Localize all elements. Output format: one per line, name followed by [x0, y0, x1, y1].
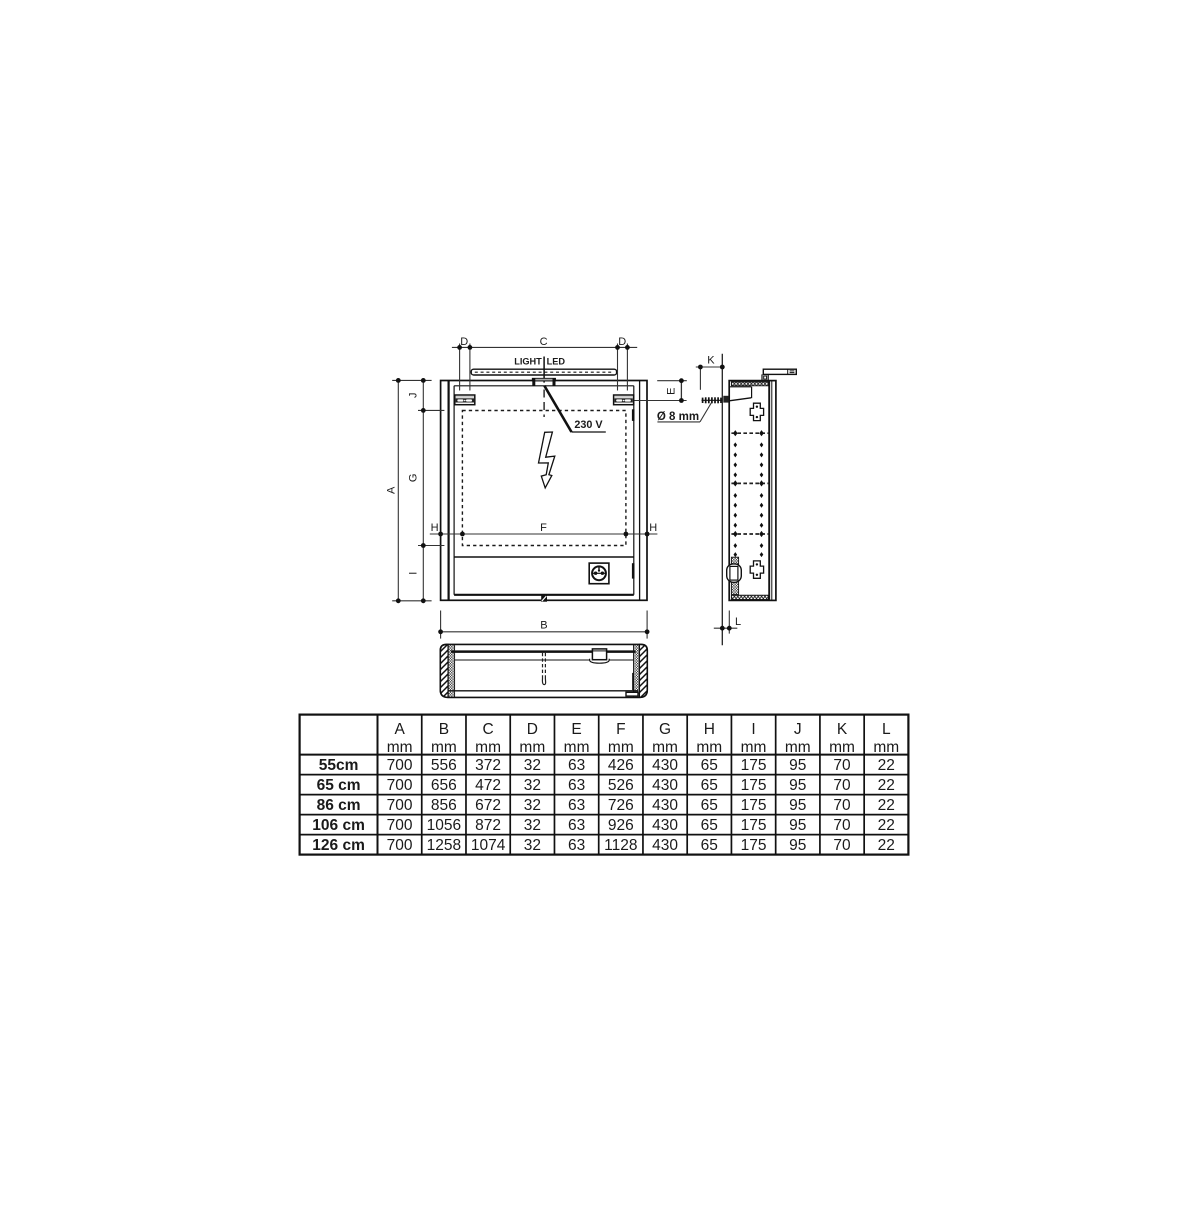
svg-text:E: E — [666, 388, 678, 395]
svg-text:mm: mm — [475, 739, 501, 756]
svg-text:H: H — [431, 522, 439, 534]
svg-text:B: B — [540, 620, 547, 632]
svg-text:B: B — [439, 721, 449, 738]
svg-text:mm: mm — [564, 739, 590, 756]
svg-text:63: 63 — [568, 837, 585, 854]
svg-text:LIGHT: LIGHT — [514, 357, 542, 367]
svg-text:32: 32 — [524, 817, 541, 834]
svg-text:95: 95 — [789, 837, 806, 854]
svg-text:70: 70 — [833, 777, 851, 794]
svg-text:H: H — [704, 721, 715, 738]
svg-text:22: 22 — [878, 777, 895, 794]
svg-text:K: K — [707, 355, 715, 367]
svg-text:672: 672 — [475, 797, 501, 814]
svg-text:65: 65 — [701, 817, 718, 834]
svg-text:700: 700 — [387, 757, 413, 774]
svg-text:700: 700 — [387, 817, 413, 834]
svg-text:22: 22 — [878, 837, 895, 854]
svg-text:J: J — [408, 392, 420, 398]
svg-text:mm: mm — [608, 739, 634, 756]
svg-text:106 cm: 106 cm — [312, 817, 365, 834]
svg-text:65: 65 — [701, 757, 718, 774]
svg-text:86 cm: 86 cm — [317, 797, 361, 814]
svg-text:65: 65 — [701, 797, 718, 814]
svg-text:1056: 1056 — [427, 817, 461, 834]
svg-text:63: 63 — [568, 777, 585, 794]
svg-text:55cm: 55cm — [319, 757, 359, 774]
svg-text:526: 526 — [608, 777, 634, 794]
svg-text:726: 726 — [608, 797, 634, 814]
svg-text:372: 372 — [475, 757, 501, 774]
svg-text:175: 175 — [741, 757, 767, 774]
svg-text:95: 95 — [789, 777, 806, 794]
svg-text:430: 430 — [652, 797, 678, 814]
svg-text:C: C — [482, 721, 493, 738]
svg-text:I: I — [408, 572, 420, 575]
svg-text:mm: mm — [519, 739, 545, 756]
svg-text:430: 430 — [652, 777, 678, 794]
svg-text:426: 426 — [608, 757, 634, 774]
svg-text:32: 32 — [524, 797, 541, 814]
svg-text:95: 95 — [789, 757, 806, 774]
svg-text:95: 95 — [789, 817, 806, 834]
svg-text:1128: 1128 — [604, 837, 637, 854]
svg-text:A: A — [385, 486, 397, 494]
svg-text:E: E — [571, 721, 581, 738]
svg-text:I: I — [751, 721, 755, 738]
svg-text:L: L — [882, 721, 891, 738]
svg-text:472: 472 — [475, 777, 501, 794]
svg-text:mm: mm — [696, 739, 722, 756]
svg-text:70: 70 — [833, 797, 851, 814]
svg-text:K: K — [837, 721, 848, 738]
svg-text:mm: mm — [741, 739, 767, 756]
svg-text:175: 175 — [741, 777, 767, 794]
svg-text:656: 656 — [431, 777, 457, 794]
svg-text:C: C — [540, 336, 548, 348]
svg-text:D: D — [618, 336, 626, 348]
svg-text:63: 63 — [568, 817, 585, 834]
svg-text:G: G — [408, 474, 420, 483]
svg-text:175: 175 — [741, 837, 767, 854]
svg-text:63: 63 — [568, 797, 585, 814]
svg-text:70: 70 — [833, 757, 851, 774]
svg-text:65: 65 — [701, 777, 718, 794]
svg-text:63: 63 — [568, 757, 585, 774]
svg-text:700: 700 — [387, 797, 413, 814]
svg-text:126 cm: 126 cm — [312, 837, 365, 854]
svg-text:95: 95 — [789, 797, 806, 814]
svg-text:F: F — [616, 721, 625, 738]
svg-text:700: 700 — [387, 777, 413, 794]
svg-text:mm: mm — [431, 739, 457, 756]
svg-text:A: A — [394, 721, 405, 738]
svg-text:F: F — [540, 522, 547, 534]
svg-text:G: G — [659, 721, 671, 738]
svg-text:430: 430 — [652, 757, 678, 774]
svg-text:mm: mm — [873, 739, 899, 756]
svg-text:1074: 1074 — [471, 837, 506, 854]
svg-text:430: 430 — [652, 817, 678, 834]
svg-text:65: 65 — [701, 837, 718, 854]
svg-text:22: 22 — [878, 757, 895, 774]
svg-text:872: 872 — [475, 817, 501, 834]
svg-text:430: 430 — [652, 837, 678, 854]
svg-text:230 V: 230 V — [574, 419, 603, 431]
svg-text:22: 22 — [878, 797, 895, 814]
svg-text:32: 32 — [524, 757, 541, 774]
svg-text:mm: mm — [652, 739, 678, 756]
svg-text:65 cm: 65 cm — [317, 777, 361, 794]
svg-text:700: 700 — [387, 837, 413, 854]
svg-text:LED: LED — [547, 357, 566, 367]
svg-text:H: H — [649, 522, 657, 534]
svg-text:D: D — [527, 721, 538, 738]
svg-text:70: 70 — [833, 817, 851, 834]
svg-text:175: 175 — [741, 817, 767, 834]
svg-text:1258: 1258 — [427, 837, 461, 854]
svg-text:L: L — [735, 616, 741, 628]
svg-text:mm: mm — [785, 739, 811, 756]
svg-text:mm: mm — [387, 739, 413, 756]
svg-text:70: 70 — [833, 837, 851, 854]
svg-text:mm: mm — [829, 739, 855, 756]
svg-text:32: 32 — [524, 837, 541, 854]
svg-text:856: 856 — [431, 797, 457, 814]
svg-text:22: 22 — [878, 817, 895, 834]
svg-text:32: 32 — [524, 777, 541, 794]
svg-text:Ø 8 mm: Ø 8 mm — [657, 411, 699, 423]
svg-text:556: 556 — [431, 757, 457, 774]
svg-text:J: J — [794, 721, 802, 738]
svg-text:175: 175 — [741, 797, 767, 814]
svg-text:926: 926 — [608, 817, 634, 834]
svg-text:D: D — [460, 336, 468, 348]
